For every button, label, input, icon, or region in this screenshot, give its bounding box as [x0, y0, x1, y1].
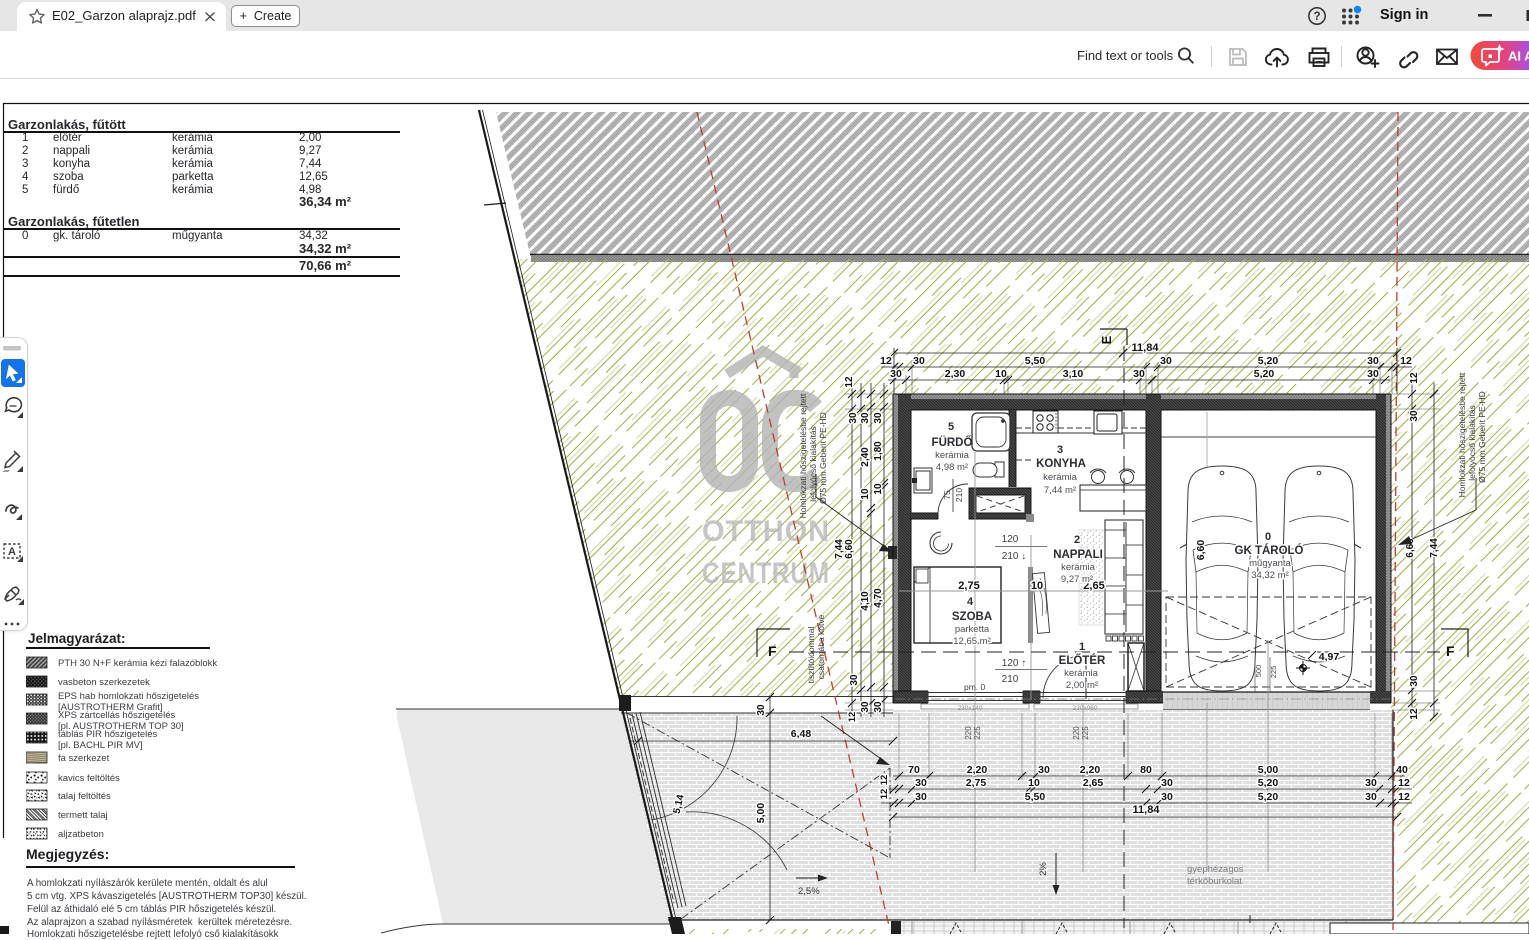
- svg-text:225: 225: [1269, 666, 1278, 679]
- svg-text:120 ↑: 120 ↑: [1002, 658, 1026, 669]
- svg-text:230x060: 230x060: [1073, 705, 1098, 712]
- svg-text:30: 30: [1409, 410, 1420, 422]
- svg-text:2,20: 2,20: [1080, 764, 1101, 776]
- svg-text:ELŐTÉR: ELŐTÉR: [1059, 654, 1106, 667]
- svg-text:30: 30: [873, 412, 884, 424]
- svg-text:5,00: 5,00: [755, 803, 767, 824]
- svg-text:F: F: [1446, 643, 1455, 659]
- svg-text:2,00 m²: 2,00 m²: [1066, 680, 1098, 691]
- svg-text:6,60: 6,60: [844, 539, 855, 559]
- svg-text:30: 30: [915, 791, 927, 803]
- svg-text:210: 210: [954, 488, 964, 502]
- svg-text:12: 12: [880, 355, 892, 367]
- svg-text:4: 4: [967, 596, 974, 608]
- svg-text:10: 10: [1031, 580, 1043, 592]
- svg-text:30: 30: [1409, 675, 1420, 687]
- svg-text:?: ?: [1313, 11, 1320, 23]
- svg-text:E: E: [1099, 335, 1114, 344]
- svg-text:Homlokzati hőszigetelésbe rejt: Homlokzati hőszigetelésbe rejtett: [798, 393, 808, 518]
- svg-text:7,44: 7,44: [1429, 538, 1440, 558]
- svg-text:225: 225: [1081, 726, 1090, 740]
- svg-text:120: 120: [1002, 534, 1019, 545]
- svg-text:gyephézagos: gyephézagos: [1187, 864, 1244, 875]
- svg-text:2: 2: [1074, 534, 1080, 546]
- svg-text:5,20: 5,20: [1258, 777, 1279, 789]
- svg-text:4,97: 4,97: [1319, 651, 1340, 663]
- svg-text:kerámia: kerámia: [1064, 668, 1099, 679]
- svg-text:30: 30: [915, 777, 927, 789]
- svg-text:12: 12: [1398, 791, 1410, 803]
- svg-text:210: 210: [1002, 674, 1019, 685]
- svg-text:30: 30: [1367, 355, 1379, 367]
- svg-text:4,10: 4,10: [860, 591, 871, 611]
- svg-text:7,44 m²: 7,44 m²: [1044, 485, 1076, 496]
- svg-text:kerámia: kerámia: [935, 450, 970, 461]
- svg-text:30: 30: [1133, 368, 1145, 380]
- svg-text:30: 30: [849, 674, 860, 686]
- svg-text:2,20: 2,20: [967, 764, 988, 776]
- svg-text:CENTRUM: CENTRUM: [702, 557, 830, 590]
- svg-text:30: 30: [756, 704, 767, 716]
- svg-text:műgyanta: műgyanta: [1249, 558, 1291, 569]
- svg-text:tisztítóidommal: tisztítóidommal: [806, 627, 816, 684]
- svg-text:30: 30: [1365, 791, 1377, 803]
- svg-text:pm. 0: pm. 0: [964, 682, 986, 692]
- svg-text:225: 225: [973, 726, 982, 740]
- svg-text:GK TÁROLÓ: GK TÁROLÓ: [1235, 544, 1304, 557]
- svg-text:70: 70: [908, 764, 920, 776]
- svg-text:csatornába kötve: csatornába kötve: [816, 614, 826, 679]
- svg-text:12: 12: [1409, 708, 1420, 720]
- svg-text:5,00: 5,00: [1258, 764, 1279, 776]
- svg-text:11,84: 11,84: [1133, 804, 1161, 816]
- svg-text:6,48: 6,48: [791, 728, 812, 740]
- svg-text:220: 220: [1072, 726, 1081, 740]
- svg-text:12,65 m²: 12,65 m²: [953, 636, 991, 647]
- svg-text:30: 30: [1160, 355, 1172, 367]
- svg-text:30: 30: [1367, 368, 1379, 380]
- svg-text:10: 10: [860, 488, 871, 500]
- svg-text:12: 12: [847, 712, 858, 723]
- svg-text:3: 3: [1057, 444, 1063, 456]
- svg-text:12: 12: [879, 789, 890, 800]
- svg-text:30: 30: [890, 368, 902, 380]
- svg-text:térkőburkolat: térkőburkolat: [1187, 876, 1242, 887]
- svg-text:500: 500: [1254, 665, 1263, 678]
- svg-text:NAPPALI: NAPPALI: [1053, 549, 1103, 561]
- svg-text:Homlokzati hőszigetelésbe rejt: Homlokzati hőszigetelésbe rejtett: [1457, 372, 1467, 497]
- svg-text:1,80: 1,80: [873, 441, 884, 461]
- svg-text:lefolyócső kialakítás: lefolyócső kialakítás: [808, 426, 818, 502]
- svg-text:2,30: 2,30: [945, 368, 966, 380]
- svg-text:210 ↓: 210 ↓: [1002, 551, 1026, 562]
- svg-text:kerámia: kerámia: [1043, 472, 1078, 483]
- svg-text:30: 30: [1161, 777, 1173, 789]
- svg-text:2,65: 2,65: [1083, 777, 1104, 789]
- svg-text:30: 30: [1161, 791, 1173, 803]
- svg-text:34,32 m²: 34,32 m²: [1251, 570, 1289, 581]
- svg-text:11,84: 11,84: [1132, 342, 1160, 354]
- svg-text:5,20: 5,20: [1258, 355, 1279, 367]
- svg-text:2,75: 2,75: [966, 777, 987, 789]
- svg-text:2,75: 2,75: [958, 580, 979, 592]
- svg-text:30: 30: [1365, 777, 1377, 789]
- svg-text:OTTHON: OTTHON: [702, 515, 830, 548]
- svg-text:220: 220: [964, 726, 973, 740]
- svg-text:5,20: 5,20: [1254, 368, 1275, 380]
- svg-text:40: 40: [1396, 764, 1408, 776]
- svg-text:4,70: 4,70: [873, 588, 884, 608]
- svg-text:2,5%: 2,5%: [798, 886, 820, 897]
- svg-text:5: 5: [948, 421, 954, 433]
- svg-text:30: 30: [860, 701, 871, 713]
- svg-text:KONYHA: KONYHA: [1036, 458, 1086, 470]
- svg-text:2,40: 2,40: [860, 447, 871, 467]
- svg-text:12: 12: [1409, 372, 1420, 384]
- svg-text:230x140: 230x140: [958, 705, 983, 712]
- svg-text:6,60: 6,60: [1195, 540, 1207, 561]
- svg-text:parketta: parketta: [955, 624, 990, 635]
- svg-text:12: 12: [1398, 777, 1410, 789]
- svg-text:10: 10: [995, 368, 1007, 380]
- svg-text:12: 12: [844, 376, 855, 388]
- svg-text:AI A: AI A: [1508, 49, 1529, 64]
- svg-text:30: 30: [1038, 764, 1050, 776]
- svg-text:FÜRDŐ: FÜRDŐ: [932, 436, 973, 449]
- svg-text:1: 1: [1079, 641, 1085, 653]
- svg-text:10: 10: [1028, 777, 1040, 789]
- svg-text:5,50: 5,50: [1025, 355, 1046, 367]
- svg-text:7,44: 7,44: [834, 539, 845, 559]
- svg-text:2%: 2%: [1038, 862, 1049, 876]
- svg-text:30: 30: [913, 355, 925, 367]
- svg-text:80: 80: [1140, 764, 1152, 776]
- svg-text:A: A: [8, 546, 16, 558]
- svg-text:4,98 m²: 4,98 m²: [936, 462, 968, 473]
- svg-text:10: 10: [873, 483, 884, 495]
- svg-text:75: 75: [942, 490, 952, 500]
- svg-text:kerámia: kerámia: [1061, 562, 1096, 573]
- svg-text:5,20: 5,20: [1258, 791, 1279, 803]
- svg-text:12: 12: [1400, 355, 1412, 367]
- svg-text:0: 0: [1265, 531, 1271, 543]
- svg-text:30: 30: [873, 701, 884, 713]
- svg-text:SZOBA: SZOBA: [952, 611, 992, 623]
- svg-text:30: 30: [848, 412, 859, 424]
- svg-text:9,27 m²: 9,27 m²: [1061, 574, 1093, 585]
- svg-text:30: 30: [860, 412, 871, 424]
- svg-text:3,10: 3,10: [1063, 368, 1084, 380]
- svg-text:Ø75 mm Geberit PE-HD: Ø75 mm Geberit PE-HD: [818, 412, 828, 504]
- svg-text:5,50: 5,50: [1025, 791, 1046, 803]
- svg-text:Ø75 mm Geberit PE-HD: Ø75 mm Geberit PE-HD: [1477, 391, 1487, 483]
- svg-text:lefolyócső kialakítás: lefolyócső kialakítás: [1467, 405, 1477, 481]
- svg-text:12: 12: [879, 775, 890, 786]
- svg-text:F: F: [768, 643, 777, 659]
